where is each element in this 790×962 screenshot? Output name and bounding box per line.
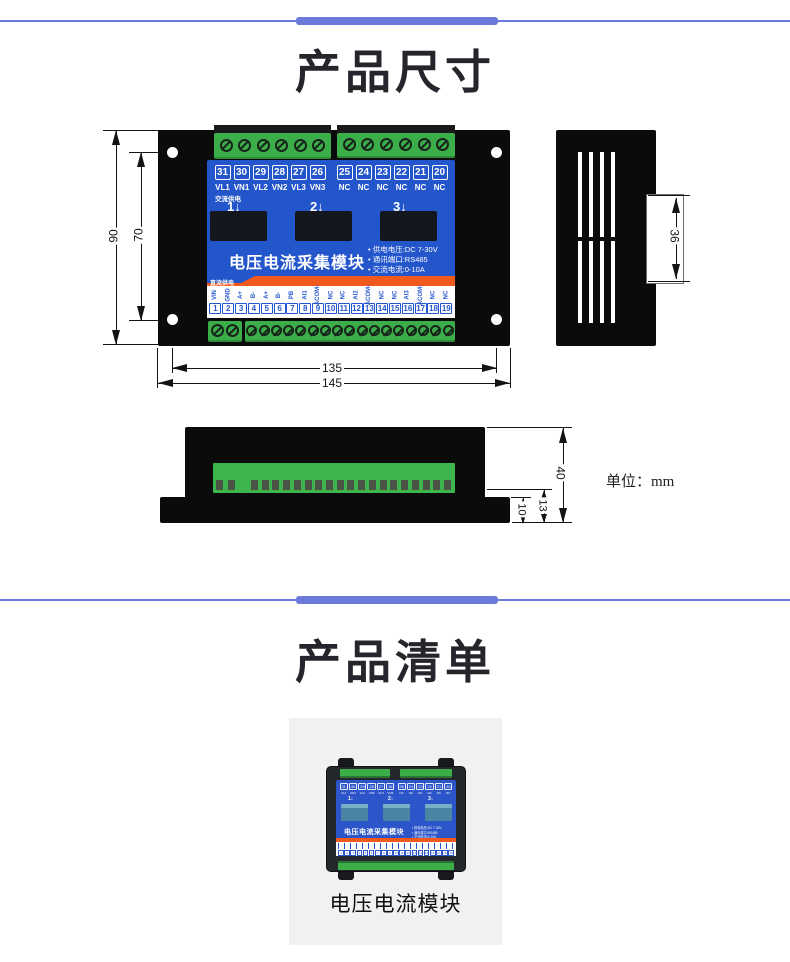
terminal-label: NC: [432, 183, 448, 192]
screw-icon: [257, 139, 270, 152]
top-terminal-labels-right: NCNCNCNCNCNC: [335, 183, 449, 192]
dim-label-135: 135: [320, 361, 344, 375]
pin-number: 15: [389, 303, 401, 314]
bottom-terminal: A+ 3: [235, 286, 248, 314]
screw-icon: [220, 139, 233, 152]
screw-icon: [275, 139, 288, 152]
terminal-number: 30: [234, 165, 250, 180]
terminal-hole: [228, 480, 235, 490]
terminal-number: 24: [356, 165, 372, 180]
screw-icon: [393, 325, 404, 336]
product-card: 313029282726 252423222120 VL1VN1VL2VN2VL…: [289, 718, 502, 945]
photo-pin-number: 9: [387, 850, 393, 856]
pin-label: ACOM-: [312, 286, 325, 303]
terminal-number: 26: [310, 165, 326, 180]
top-terminal-numbers-left: 313029282726: [213, 165, 327, 180]
terminal-hole: [305, 480, 312, 490]
bottom-terminal: GND 2: [222, 286, 235, 314]
photo-terminal-number: 26: [386, 783, 394, 790]
bottom-terminal: B- 4: [247, 286, 260, 314]
terminal-label: VN1: [234, 183, 250, 192]
photo-pin-numbers: 12345678910111213141516171819: [338, 850, 454, 856]
spec-line: • 供电电压:DC 7-30V: [368, 245, 438, 255]
photo-pin-number: 2: [344, 850, 350, 856]
photo-pin-number: 6: [369, 850, 375, 856]
photo-labels-left: VL1VN1VL2VN2VL3VN3: [339, 791, 395, 795]
bottom-terminal: NC 18: [427, 286, 440, 314]
vent-slot: [600, 152, 604, 237]
bottom-terminal: ACOM- 13: [363, 286, 376, 314]
pin-label: ACOM-: [414, 286, 427, 303]
terminal-hole: [337, 480, 344, 490]
photo-terminal-label: VN3: [386, 791, 394, 795]
vent-slot: [578, 241, 582, 323]
terminal-label: VN3: [310, 183, 326, 192]
photo-pin-number: 17: [436, 850, 442, 856]
terminal-hole: [358, 480, 365, 490]
photo-panel: 313029282726 252423222120 VL1VN1VL2VN2VL…: [336, 780, 456, 856]
bottom-terminal-block-left: [208, 321, 242, 342]
screw-icon: [308, 325, 319, 336]
bottom-terminal: NC 11: [337, 286, 350, 314]
bottom-terminal: AI2 12: [350, 286, 363, 314]
pin-label: NC: [427, 286, 440, 303]
bottom-terminal-strip: VIN 1 GND 2 A+ 3 B- 4: [207, 286, 455, 318]
terminal-hole: [369, 480, 376, 490]
photo-pin-number: 11: [399, 850, 405, 856]
mounting-hole: [491, 314, 502, 325]
module-front-panel: 313029282726 252423222120 VL1VN1VL2VN2VL…: [207, 160, 455, 318]
screw-icon: [380, 138, 393, 151]
divider-line-mid: [0, 599, 790, 601]
terminal-label: VN2: [272, 183, 288, 192]
photo-terminal-label: NC: [398, 791, 406, 795]
terminal-hole: [390, 480, 397, 490]
photo-pin-labels: [338, 843, 454, 849]
transformer-block: [380, 211, 437, 241]
pin-number: 8: [299, 303, 311, 314]
screw-icon: [344, 325, 355, 336]
pin-number: 14: [376, 303, 388, 314]
screw-icon: [436, 138, 449, 151]
pin-number: 6: [274, 303, 286, 314]
photo-channel-marker: 3↓: [428, 797, 433, 802]
photo-terminal-number: 28: [367, 783, 375, 790]
photo-transformer: [341, 804, 368, 821]
pin-label: B-: [273, 286, 286, 303]
screw-icon: [369, 325, 380, 336]
spec-line: • 交流电流:0-10A: [368, 265, 438, 275]
pin-number: 10: [325, 303, 337, 314]
photo-pin-number: 13: [412, 850, 418, 856]
photo-terminal-label: VN2: [367, 791, 375, 795]
pin-number: 7: [286, 303, 298, 314]
photo-terminal-number: 31: [340, 783, 348, 790]
bottom-terminal: VIN 1: [209, 286, 222, 314]
terminal-hole: [347, 480, 354, 490]
terminal-hole: [326, 480, 333, 490]
terminal-label: NC: [337, 183, 353, 192]
photo-terminals-top-right: [400, 769, 452, 778]
pin-number: 11: [338, 303, 350, 314]
pin-number: 19: [440, 303, 452, 314]
terminal-label: NC: [394, 183, 410, 192]
pin-number: 16: [402, 303, 414, 314]
screw-icon: [312, 139, 325, 152]
bottom-view-base: [160, 497, 510, 523]
photo-pin-number: 4: [357, 850, 363, 856]
bottom-terminal: NC 19: [440, 286, 453, 314]
section-title-list: 产品清单: [0, 626, 790, 692]
vent-slots-bottom: [578, 241, 615, 323]
top-terminal-labels-left: VL1VN1VL2VN2VL3VN3: [213, 183, 327, 192]
bottom-terminal: ACOM- 17: [414, 286, 427, 314]
dim-label-145: 145: [320, 376, 344, 390]
terminal-number: 22: [394, 165, 410, 180]
pin-label: VIN: [209, 286, 222, 303]
bottom-terminal: NC 10: [324, 286, 337, 314]
photo-pin-number: 7: [375, 850, 381, 856]
pin-label: PB: [286, 286, 299, 303]
terminal-hole: [262, 480, 269, 490]
terminal-number: 25: [337, 165, 353, 180]
photo-pin-number: 5: [363, 850, 369, 856]
pin-number: 1: [209, 303, 221, 314]
photo-pin-number: 15: [424, 850, 430, 856]
pin-label: AI2: [350, 286, 363, 303]
photo-terminal-label: NC: [435, 791, 443, 795]
photo-terminal-label: VL2: [358, 791, 366, 795]
dim-label-13: 13: [536, 497, 549, 513]
screw-icon: [418, 325, 429, 336]
terminal-hole: [315, 480, 322, 490]
photo-terminal-label: NC: [407, 791, 415, 795]
photo-pin-number: 1: [338, 850, 344, 856]
dc-power-label: 直流供电: [210, 278, 234, 287]
terminal-hole: [251, 480, 258, 490]
photo-pin-number: 18: [442, 850, 448, 856]
bottom-terminals: VIN 1 GND 2 A+ 3 B- 4: [209, 286, 453, 314]
spec-line: • 通讯端口:RS485: [368, 255, 438, 265]
pin-label: A+: [235, 286, 248, 303]
dim-label-40: 40: [554, 464, 568, 481]
screw-icon: [443, 325, 454, 336]
bottom-terminal: ACOM- 9: [312, 286, 325, 314]
screw-icon: [361, 138, 374, 151]
pin-number: 2: [222, 303, 234, 314]
screw-icon: [430, 325, 441, 336]
pin-label: NC: [440, 286, 453, 303]
terminal-hole: [380, 480, 387, 490]
terminal-holes-left: [216, 480, 235, 490]
terminal-number: 27: [291, 165, 307, 180]
photo-pin-number: 12: [405, 850, 411, 856]
photo-spec-line: • 供电电压:DC 7-30V: [412, 826, 442, 831]
terminal-number: 23: [375, 165, 391, 180]
pin-label: NC: [324, 286, 337, 303]
screw-icon: [418, 138, 431, 151]
vent-slot: [611, 152, 615, 237]
mounting-hole: [491, 147, 502, 158]
bottom-terminal: AI1 8: [299, 286, 312, 314]
bottom-terminal: PB 7: [286, 286, 299, 314]
photo-terminal-number: 29: [358, 783, 366, 790]
terminal-number: 28: [272, 165, 288, 180]
terminal-label: VL2: [253, 183, 269, 192]
photo-numbers-right: 252423222120: [397, 783, 453, 790]
transformer-block: [210, 211, 267, 241]
photo-terminals-top-left: [340, 769, 390, 778]
pin-number: 3: [235, 303, 247, 314]
top-terminal-block-left: [214, 133, 331, 159]
photo-labels-right: NCNCNCNCNCNC: [397, 791, 453, 795]
bottom-terminal: NC 15: [389, 286, 402, 314]
pin-label: NC: [376, 286, 389, 303]
pin-label: AI1: [299, 286, 312, 303]
dim-label-36: 36: [668, 227, 682, 244]
screw-icon: [357, 325, 368, 336]
unit-label: 单位：mm: [606, 470, 674, 491]
pin-label: AI3: [401, 286, 414, 303]
photo-terminal-number: 24: [407, 783, 415, 790]
terminal-holes-right: [251, 480, 451, 490]
pin-label: GND: [222, 286, 235, 303]
photo-terminal-number: 23: [416, 783, 424, 790]
dim-label-10: 10: [515, 501, 528, 517]
pin-label: B-: [247, 286, 260, 303]
pin-label: ACOM-: [363, 286, 376, 303]
photo-pin-number: 10: [393, 850, 399, 856]
screw-icon: [294, 139, 307, 152]
photo-pin-number: 19: [448, 850, 454, 856]
photo-terminal-number: 30: [349, 783, 357, 790]
bottom-terminal-block-right: [245, 321, 455, 342]
photo-pin-number: 8: [381, 850, 387, 856]
photo-numbers-left: 313029282726: [339, 783, 395, 790]
section-title-dimensions: 产品尺寸: [0, 36, 790, 102]
terminal-hole: [412, 480, 419, 490]
photo-pin-number: 14: [418, 850, 424, 856]
terminal-label: NC: [413, 183, 429, 192]
photo-terminal-label: NC: [444, 791, 452, 795]
terminal-hole: [401, 480, 408, 490]
vent-slot: [578, 152, 582, 237]
bottom-terminal: B- 6: [273, 286, 286, 314]
screw-icon: [406, 325, 417, 336]
terminal-hole: [272, 480, 279, 490]
bottom-terminal: A+ 5: [260, 286, 273, 314]
screw-icon: [226, 324, 239, 337]
pin-number: 12: [351, 303, 363, 314]
vent-slot: [600, 241, 604, 323]
screw-icon: [211, 324, 224, 337]
bottom-terminal: AI3 16: [401, 286, 414, 314]
screw-icon: [332, 325, 343, 336]
dim-label-90: 90: [107, 227, 121, 244]
photo-channel-marker: 1↓: [348, 797, 353, 802]
photo-pin-number: 3: [350, 850, 356, 856]
photo-pin-number: 16: [430, 850, 436, 856]
photo-module-title: 电压电流采集模块: [344, 827, 404, 837]
terminal-hole: [294, 480, 301, 490]
screw-icon: [343, 138, 356, 151]
top-terminal-numbers-right: 252423222120: [335, 165, 449, 180]
dim-label-70: 70: [132, 226, 146, 243]
photo-terminal-label: NC: [425, 791, 433, 795]
mounting-hole: [167, 314, 178, 325]
photo-terminals-bottom: [338, 861, 454, 870]
pin-number: 5: [261, 303, 273, 314]
photo-transformer: [425, 804, 452, 821]
bottom-terminal: NC 14: [376, 286, 389, 314]
top-tab-left: [214, 125, 331, 133]
vent-slot: [589, 152, 593, 237]
module-specs: • 供电电压:DC 7-30V• 通讯端口:RS485• 交流电流:0-10A: [368, 245, 438, 275]
photo-channel-marker: 2↓: [388, 797, 393, 802]
top-tab-right: [337, 125, 455, 133]
screw-icon: [246, 325, 257, 336]
terminal-label: VL1: [215, 183, 231, 192]
terminal-label: VL3: [291, 183, 307, 192]
screw-icon: [238, 139, 251, 152]
terminal-number: 29: [253, 165, 269, 180]
screw-icon: [259, 325, 270, 336]
terminal-label: NC: [356, 183, 372, 192]
vent-slot: [611, 241, 615, 323]
screw-icon: [271, 325, 282, 336]
product-caption: 电压电流模块: [289, 888, 502, 918]
terminal-hole: [423, 480, 430, 490]
vent-slots-top: [578, 152, 615, 237]
photo-terminal-number: 27: [377, 783, 385, 790]
top-terminal-block-right: [337, 133, 455, 158]
photo-terminal-label: NC: [416, 791, 424, 795]
pin-label: NC: [337, 286, 350, 303]
product-photo: 313029282726 252423222120 VL1VN1VL2VN2VL…: [326, 766, 466, 872]
pin-number: 4: [248, 303, 260, 314]
terminal-number: 21: [413, 165, 429, 180]
screw-icon: [283, 325, 294, 336]
terminal-hole: [433, 480, 440, 490]
screw-icon: [399, 138, 412, 151]
screw-icon: [381, 325, 392, 336]
vent-slot: [589, 241, 593, 323]
terminal-number: 31: [215, 165, 231, 180]
terminal-number: 20: [432, 165, 448, 180]
module-title: 电压电流采集模块: [229, 249, 365, 273]
mounting-hole: [167, 147, 178, 158]
photo-terminal-number: 21: [435, 783, 443, 790]
photo-terminal-number: 22: [425, 783, 433, 790]
photo-terminal-number: 25: [398, 783, 406, 790]
photo-transformer: [383, 804, 410, 821]
pin-label: A+: [260, 286, 273, 303]
photo-terminal-label: VN1: [349, 791, 357, 795]
terminal-label: NC: [375, 183, 391, 192]
terminal-hole: [283, 480, 290, 490]
photo-terminal-label: VL1: [340, 791, 348, 795]
screw-icon: [295, 325, 306, 336]
divider-line-top: [0, 20, 790, 22]
transformer-block: [295, 211, 352, 241]
terminal-hole: [216, 480, 223, 490]
pin-label: NC: [389, 286, 402, 303]
photo-terminal-label: VL3: [377, 791, 385, 795]
product-page: 产品尺寸 90 70 313029282726 252423222120: [0, 0, 790, 962]
terminal-hole: [444, 480, 451, 490]
pin-number: 18: [427, 303, 439, 314]
photo-terminal-number: 20: [444, 783, 452, 790]
screw-icon: [320, 325, 331, 336]
photo-label-strip: 12345678910111213141516171819: [336, 842, 456, 857]
